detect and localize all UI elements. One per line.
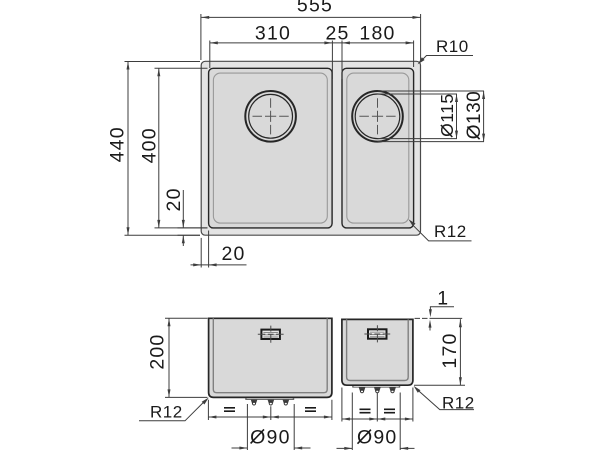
svg-text:R12: R12	[442, 393, 475, 412]
svg-text:R12: R12	[434, 222, 467, 241]
svg-text:440: 440	[107, 126, 129, 162]
svg-text:170: 170	[439, 332, 461, 368]
svg-text:180: 180	[359, 23, 395, 45]
svg-text:555: 555	[297, 0, 333, 17]
svg-text:20: 20	[163, 187, 185, 211]
svg-text:1: 1	[437, 288, 449, 310]
svg-text:310: 310	[255, 23, 291, 45]
svg-text:R10: R10	[436, 37, 469, 56]
svg-text:400: 400	[138, 127, 160, 163]
svg-text:R12: R12	[150, 402, 183, 421]
svg-text:200: 200	[147, 334, 169, 370]
svg-text:20: 20	[221, 243, 245, 265]
svg-text:25: 25	[325, 23, 349, 45]
svg-text:O130: O130	[464, 91, 485, 139]
